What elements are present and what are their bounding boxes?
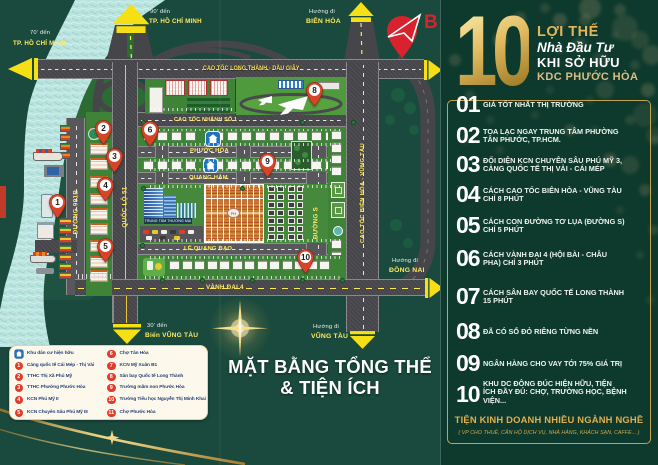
- svg-text:5: 5: [103, 242, 108, 251]
- svg-text:3: 3: [112, 152, 117, 161]
- svg-text:8: 8: [312, 86, 317, 95]
- svg-text:6: 6: [148, 125, 153, 135]
- svg-text:9: 9: [265, 157, 270, 166]
- svg-text:10: 10: [301, 253, 311, 262]
- svg-text:B: B: [424, 12, 438, 33]
- svg-text:2: 2: [101, 124, 106, 133]
- svg-text:1: 1: [55, 198, 60, 207]
- svg-text:4: 4: [103, 181, 108, 190]
